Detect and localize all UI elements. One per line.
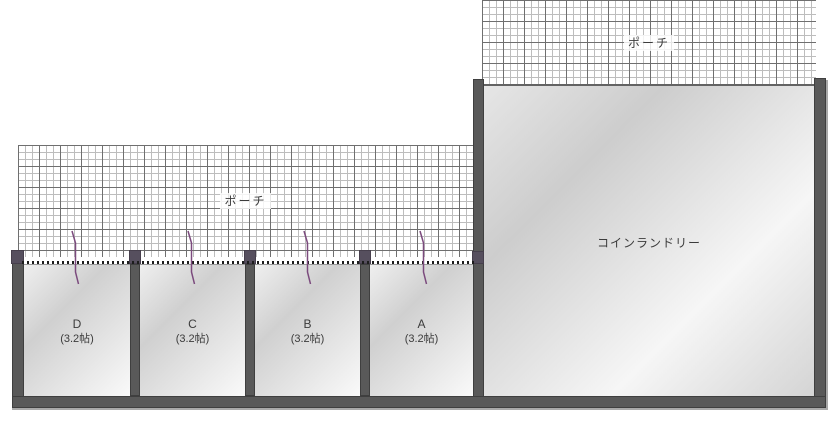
porch-upper-area: ポーチ [482,0,816,85]
wall-left [12,250,24,408]
entry-arrow-icon [184,228,198,286]
coin-laundry-label: コインランドリー [597,234,701,251]
wall-divider-d-c [130,264,140,396]
coin-laundry-room: コインランドリー [484,84,814,398]
room-b-name: B [303,317,311,332]
wall-divider-b-a [360,264,370,396]
room-c-name: C [188,317,197,332]
room-a-size: (3.2帖) [405,332,439,346]
wall-divider-c-b [245,264,255,396]
wall-bottom [12,396,826,408]
porch-lower-area: ポーチ [18,145,473,257]
wall-right [814,78,826,408]
wall-laundry-left [473,79,484,408]
room-b-size: (3.2帖) [291,332,325,346]
entrance-dotted-line [22,261,474,264]
room-c-size: (3.2帖) [176,332,210,346]
room-d-size: (3.2帖) [60,332,94,346]
entry-arrow-icon [300,228,314,286]
porch-upper-label: ポーチ [624,35,674,51]
entry-arrow-icon [68,228,82,286]
entry-arrow-icon [416,228,430,286]
room-d-name: D [73,317,82,332]
floor-plan: ポーチ ポーチ コインランドリー D (3.2帖) C (3.2帖) B (3.… [0,0,831,424]
porch-lower-label: ポーチ [220,193,270,209]
room-a-name: A [417,317,425,332]
